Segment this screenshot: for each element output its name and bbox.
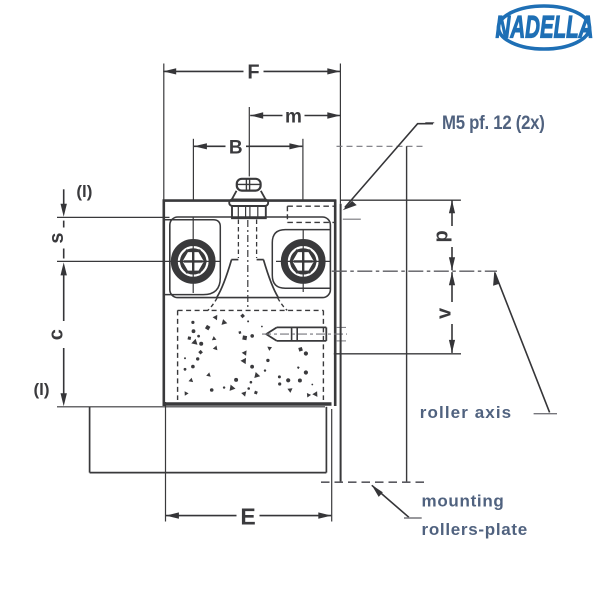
svg-text:E: E [240, 504, 255, 530]
svg-text:NADELLA: NADELLA [496, 9, 594, 45]
svg-text:(l): (l) [76, 182, 92, 201]
svg-text:m: m [285, 107, 302, 128]
svg-text:v: v [434, 307, 456, 319]
svg-text:F: F [247, 62, 259, 84]
svg-text:roller axis: roller axis [420, 403, 512, 422]
svg-text:c: c [45, 329, 67, 340]
svg-text:rollers-plate: rollers-plate [422, 520, 528, 539]
svg-text:s: s [46, 232, 68, 243]
svg-text:B: B [229, 138, 243, 159]
svg-text:mounting: mounting [422, 491, 505, 510]
svg-text:p: p [431, 230, 453, 242]
svg-text:(l): (l) [33, 380, 49, 399]
svg-text:M5 pf. 12 (2x): M5 pf. 12 (2x) [442, 112, 545, 133]
